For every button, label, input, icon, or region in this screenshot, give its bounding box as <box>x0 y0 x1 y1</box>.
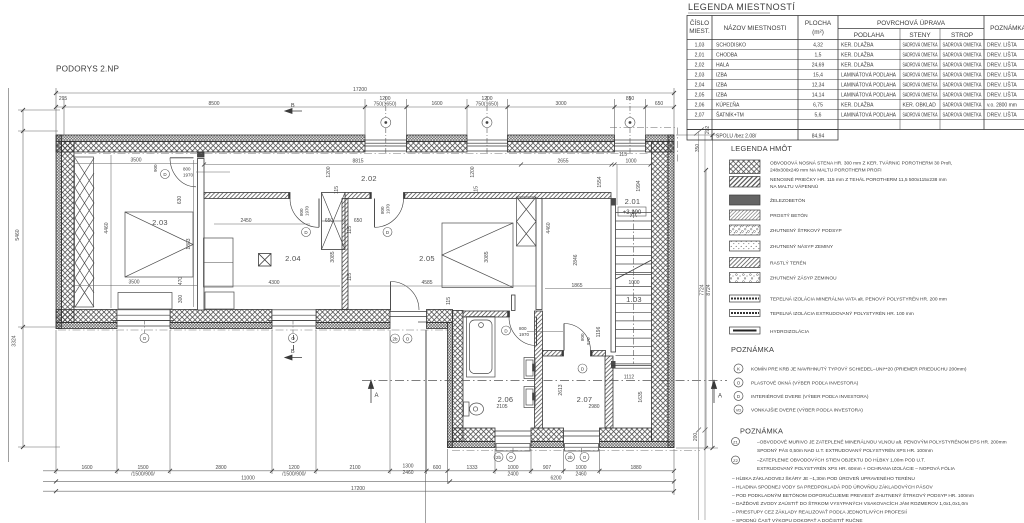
svg-text:6,75: 6,75 <box>813 103 823 109</box>
svg-text:350: 350 <box>695 144 701 153</box>
svg-text:4460: 4460 <box>104 222 110 233</box>
svg-text:KER. OBKLAD: KER. OBKLAD <box>903 103 937 109</box>
svg-text:1994: 1994 <box>636 180 642 191</box>
svg-text:PLOCHA: PLOCHA <box>805 20 832 27</box>
svg-text:ZHUTNENÝ ŠTRKOVÝ PODSYP: ZHUTNENÝ ŠTRKOVÝ PODSYP <box>770 227 842 234</box>
svg-text:115: 115 <box>446 297 452 305</box>
svg-text:2.03: 2.03 <box>152 218 168 227</box>
svg-text:1970: 1970 <box>519 332 530 337</box>
svg-text:1112: 1112 <box>624 375 635 381</box>
svg-text:8815: 8815 <box>352 159 363 165</box>
svg-text:1000: 1000 <box>507 465 518 471</box>
svg-text:1000: 1000 <box>625 159 636 165</box>
svg-text:VD: VD <box>736 408 742 413</box>
svg-text:IZBA: IZBA <box>716 93 728 99</box>
svg-text:LAMINÁTOVÁ PODLAHA: LAMINÁTOVÁ PODLAHA <box>841 72 897 79</box>
svg-text:O: O <box>737 381 741 386</box>
svg-text:8724: 8724 <box>706 284 712 295</box>
svg-text:ZHUTNENÝ ZÁSYP ZEMINOU: ZHUTNENÝ ZÁSYP ZEMINOU <box>770 275 837 282</box>
svg-text:A: A <box>718 394 722 400</box>
svg-text:5,6: 5,6 <box>815 113 822 119</box>
svg-text:1865: 1865 <box>571 283 582 289</box>
svg-text:2,02: 2,02 <box>695 63 705 69</box>
svg-text:KER. DLAŽBA: KER. DLAŽBA <box>841 51 874 59</box>
svg-text:3000: 3000 <box>555 101 566 107</box>
svg-text:SADROVÁ OMIETKA: SADROVÁ OMIETKA <box>943 72 983 79</box>
svg-text:/1500/900/: /1500/900/ <box>282 472 306 478</box>
svg-text:115: 115 <box>347 273 353 281</box>
svg-text:17200: 17200 <box>353 87 367 93</box>
svg-text:STENY: STENY <box>909 32 931 39</box>
svg-text:O: O <box>143 336 147 341</box>
svg-text:DREV. LIŠTA: DREV. LIŠTA <box>987 42 1017 49</box>
svg-text:POVRCHOVÁ ÚPRAVA: POVRCHOVÁ ÚPRAVA <box>877 18 946 27</box>
svg-text:800: 800 <box>519 326 527 331</box>
svg-text:650: 650 <box>655 101 664 107</box>
svg-text:1300: 1300 <box>402 464 413 470</box>
svg-text:DREV. LIŠTA: DREV. LIŠTA <box>987 92 1017 99</box>
svg-text:1970: 1970 <box>305 205 310 216</box>
svg-text:11000: 11000 <box>241 476 255 482</box>
svg-text:Z2: Z2 <box>733 458 738 463</box>
svg-text:2.01: 2.01 <box>625 197 641 206</box>
svg-text:/1500/900/: /1500/900/ <box>131 472 155 478</box>
svg-text:CHODBA: CHODBA <box>716 53 738 59</box>
svg-text:KOMÍN PRE KRB JE NAVRHNUTÝ TYP: KOMÍN PRE KRB JE NAVRHNUTÝ TYPOVÝ SCHIED… <box>751 366 967 373</box>
svg-text:1554: 1554 <box>597 176 603 187</box>
svg-text:4300: 4300 <box>268 280 279 286</box>
svg-text:3500: 3500 <box>128 280 139 286</box>
svg-text:HALA: HALA <box>716 63 730 69</box>
svg-text:– HĹBKA ZÁKLADOVEJ ŠKÁRY JE –1: – HĹBKA ZÁKLADOVEJ ŠKÁRY JE –1,30m POD Ú… <box>732 475 915 482</box>
svg-text:3324: 3324 <box>12 335 18 346</box>
svg-text:NÁZOV MIESTNOSTI: NÁZOV MIESTNOSTI <box>724 23 787 32</box>
svg-text:+3,190: +3,190 <box>623 210 642 216</box>
svg-text:1.03: 1.03 <box>626 295 642 304</box>
svg-text:–ZATEPLENIE OBVODOVÝCH STIEN O: –ZATEPLENIE OBVODOVÝCH STIEN OBJEKTU DO … <box>757 457 925 464</box>
svg-text:SADROVÁ OMIETKA: SADROVÁ OMIETKA <box>903 82 938 89</box>
svg-text:PODLAHA: PODLAHA <box>854 32 885 39</box>
svg-text:3085: 3085 <box>330 251 336 262</box>
svg-text:SADROVÁ OMIETKA: SADROVÁ OMIETKA <box>903 112 938 119</box>
svg-text:ŠATNÍK+TM: ŠATNÍK+TM <box>716 112 744 119</box>
svg-text:SADROVÁ OMIETKA: SADROVÁ OMIETKA <box>943 102 983 109</box>
svg-text:3085: 3085 <box>484 251 490 262</box>
svg-text:1200: 1200 <box>326 166 332 177</box>
svg-text:2.05: 2.05 <box>419 254 435 263</box>
svg-text:1500: 1500 <box>137 465 148 471</box>
svg-text:SADROVÁ OMIETKA: SADROVÁ OMIETKA <box>903 92 938 99</box>
svg-text:3500: 3500 <box>130 158 141 164</box>
svg-text:DREV. LIŠTA: DREV. LIŠTA <box>987 82 1017 89</box>
svg-text:1635: 1635 <box>638 391 644 402</box>
svg-text:RASTLÝ TERÉN: RASTLÝ TERÉN <box>770 260 807 267</box>
svg-text:DREV. LIŠTA: DREV. LIŠTA <box>987 52 1017 59</box>
svg-text:INTERIÉROVÉ DVERE (VÝBER PODĽA: INTERIÉROVÉ DVERE (VÝBER PODĽA INVESTORA… <box>751 393 869 400</box>
svg-text:115: 115 <box>474 186 480 194</box>
svg-text:MIEST.: MIEST. <box>689 28 710 35</box>
svg-text:1600: 1600 <box>81 465 92 471</box>
svg-text:TEPELNÁ IZOLÁCIA EXTRUDOVANÝ P: TEPELNÁ IZOLÁCIA EXTRUDOVANÝ POLYSTYRÉN … <box>770 310 914 317</box>
svg-text:OBVODOVÁ NOSNÁ STENA HR. 300 m: OBVODOVÁ NOSNÁ STENA HR. 300 mm Z KER. T… <box>770 160 952 167</box>
svg-text:24,69: 24,69 <box>812 63 825 69</box>
svg-text:ČÍSLO: ČÍSLO <box>690 18 709 27</box>
svg-text:DREV. LIŠTA: DREV. LIŠTA <box>987 72 1017 79</box>
svg-text:1200: 1200 <box>288 465 299 471</box>
svg-text:800: 800 <box>299 208 304 216</box>
svg-text:7724: 7724 <box>700 284 706 295</box>
svg-text:2655: 2655 <box>557 159 568 165</box>
svg-text:2,03: 2,03 <box>695 73 705 79</box>
svg-text:O: O <box>583 455 587 460</box>
svg-text:2980: 2980 <box>588 404 599 410</box>
svg-text:1000: 1000 <box>575 465 586 471</box>
svg-text:A: A <box>375 393 379 399</box>
svg-text:12,34: 12,34 <box>812 83 825 89</box>
svg-text:1196: 1196 <box>596 326 602 337</box>
svg-text:2.07: 2.07 <box>577 395 593 404</box>
svg-text:B: B <box>291 349 295 355</box>
svg-text:1970: 1970 <box>386 203 391 214</box>
svg-text:POZNÁMKA: POZNÁMKA <box>740 427 783 436</box>
svg-text:630: 630 <box>177 196 183 205</box>
svg-text:–OBVODOVÉ MURIVO JE ZATEPLENÉ: –OBVODOVÉ MURIVO JE ZATEPLENÉ MINERÁLNOU… <box>757 439 1007 446</box>
svg-text:115: 115 <box>347 226 353 234</box>
svg-text:KÚPEĽŇA: KÚPEĽŇA <box>716 102 740 109</box>
svg-text:ZHUTNENÝ NÁSYP ZEMINY: ZHUTNENÝ NÁSYP ZEMINY <box>770 243 834 250</box>
svg-text:2400: 2400 <box>507 472 518 478</box>
svg-text:970: 970 <box>586 337 591 345</box>
svg-text:200: 200 <box>693 433 699 442</box>
svg-text:(m²): (m²) <box>812 29 824 36</box>
svg-text:2460: 2460 <box>402 470 413 476</box>
svg-text:LAMINÁTOVÁ PODLAHA: LAMINÁTOVÁ PODLAHA <box>841 82 897 89</box>
svg-text:PROSTÝ BETÓN: PROSTÝ BETÓN <box>770 212 808 219</box>
svg-text:SPODNÝ PÁS 0,50m NAD U.T. EXTR: SPODNÝ PÁS 0,50m NAD U.T. EXTRUDOVANÝ PO… <box>757 447 933 454</box>
svg-text:1,5: 1,5 <box>815 53 822 59</box>
svg-text:1,03: 1,03 <box>695 43 705 49</box>
svg-text:B: B <box>291 103 295 109</box>
svg-text:1970: 1970 <box>183 173 194 178</box>
svg-text:NENOSNÉ PRIEČKY HR. 115 mm Z T: NENOSNÉ PRIEČKY HR. 115 mm Z TEHÁL POROT… <box>770 176 947 183</box>
svg-text:STROP: STROP <box>951 32 973 39</box>
svg-text:IZBA: IZBA <box>716 83 728 89</box>
svg-text:907: 907 <box>543 465 552 471</box>
svg-text:POZNÁMKA: POZNÁMKA <box>990 23 1024 32</box>
svg-text:5460: 5460 <box>15 229 21 240</box>
svg-text:2450: 2450 <box>240 218 251 224</box>
svg-text:DREV. LIŠTA: DREV. LIŠTA <box>987 62 1017 69</box>
svg-text:POZNÁMKA: POZNÁMKA <box>731 345 774 354</box>
svg-text:O: O <box>406 337 410 342</box>
svg-text:SADROVÁ OMIETKA: SADROVÁ OMIETKA <box>943 62 983 69</box>
svg-text:KER. DLAŽBA: KER. DLAŽBA <box>841 101 874 109</box>
svg-text:17200: 17200 <box>351 486 365 492</box>
svg-text:2b: 2b <box>567 455 573 460</box>
svg-text:6200: 6200 <box>550 476 561 482</box>
svg-text:900: 900 <box>153 164 158 172</box>
svg-text:2,07: 2,07 <box>695 113 705 119</box>
svg-text:2800: 2800 <box>215 465 226 471</box>
svg-text:1333: 1333 <box>466 465 477 471</box>
svg-text:SADROVÁ OMIETKA: SADROVÁ OMIETKA <box>943 112 983 119</box>
svg-text:O: O <box>509 455 513 460</box>
svg-text:248x300x249 mm NA MALTU POROTH: 248x300x249 mm NA MALTU POROTHERM PROFI <box>770 168 882 174</box>
svg-text:TEPELNÁ IZOLÁCIA MINERÁLNA VAT: TEPELNÁ IZOLÁCIA MINERÁLNA VATA alt. PEN… <box>770 296 947 303</box>
svg-text:SADROVÁ OMIETKA: SADROVÁ OMIETKA <box>903 42 938 49</box>
svg-text:PLASTOVÉ OKNÁ (VÝBER PODĽA INV: PLASTOVÉ OKNÁ (VÝBER PODĽA INVESTORA) <box>751 380 859 387</box>
svg-text:1803: 1803 <box>186 238 192 249</box>
svg-text:DREV. LIŠTA: DREV. LIŠTA <box>987 112 1017 119</box>
svg-text:SADROVÁ OMIETKA: SADROVÁ OMIETKA <box>943 82 983 89</box>
svg-text:2.02: 2.02 <box>361 174 377 183</box>
svg-text:4,32: 4,32 <box>813 43 823 49</box>
svg-text:84,94: 84,94 <box>812 134 825 140</box>
svg-text:1200: 1200 <box>470 166 476 177</box>
svg-text:4585: 4585 <box>421 280 432 286</box>
svg-text:NA MALTU VÁPENNÚ: NA MALTU VÁPENNÚ <box>770 183 819 190</box>
svg-text:2,01: 2,01 <box>695 53 705 59</box>
svg-text:2,05: 2,05 <box>695 93 705 99</box>
svg-text:KER. DLAŽBA: KER. DLAŽBA <box>841 61 874 69</box>
svg-text:SADROVÁ OMIETKA: SADROVÁ OMIETKA <box>943 42 983 49</box>
svg-text:LEGENDA MIESTNOSTÍ: LEGENDA MIESTNOSTÍ <box>688 2 795 12</box>
svg-text:2100: 2100 <box>349 465 360 471</box>
svg-text:HYDROIZOLÁCIA: HYDROIZOLÁCIA <box>770 328 810 335</box>
svg-text:2.04: 2.04 <box>285 254 301 263</box>
svg-text:650: 650 <box>354 218 363 224</box>
svg-text:PODORYS 2.NP: PODORYS 2.NP <box>56 65 119 74</box>
svg-text:2105: 2105 <box>496 404 507 410</box>
svg-text:115: 115 <box>334 186 340 194</box>
svg-text:1600: 1600 <box>431 101 442 107</box>
svg-text:2,06: 2,06 <box>695 103 705 109</box>
svg-text:750(1650): 750(1650) <box>374 102 397 108</box>
svg-text:470: 470 <box>178 277 184 286</box>
svg-text:14,14: 14,14 <box>812 93 825 99</box>
svg-text:SADROVÁ OMIETKA: SADROVÁ OMIETKA <box>903 52 938 59</box>
svg-text:VONKAJŠIE DVERE (VÝBER PODĽA I: VONKAJŠIE DVERE (VÝBER PODĽA INVESTORA) <box>751 407 863 414</box>
svg-text:IZBA: IZBA <box>716 73 728 79</box>
svg-text:2,04: 2,04 <box>695 83 705 89</box>
svg-text:SPOLU /bez 2.08/: SPOLU /bez 2.08/ <box>716 134 757 140</box>
svg-text:300: 300 <box>178 295 184 304</box>
svg-text:– HLADINA SPODNEJ VODY SA PRED: – HLADINA SPODNEJ VODY SA PREDPOKLADÁ PO… <box>732 483 933 490</box>
svg-text:v.o. 2800 mm: v.o. 2800 mm <box>987 103 1017 109</box>
svg-text:2b: 2b <box>496 455 502 460</box>
svg-text:600: 600 <box>433 465 442 471</box>
svg-text:800: 800 <box>580 333 585 341</box>
svg-text:1880: 1880 <box>630 465 641 471</box>
svg-text:SADROVÁ OMIETKA: SADROVÁ OMIETKA <box>903 62 938 69</box>
svg-text:2b: 2b <box>392 337 398 342</box>
svg-text:4460: 4460 <box>546 222 552 233</box>
svg-text:650: 650 <box>325 218 334 224</box>
svg-text:800: 800 <box>380 206 385 214</box>
svg-text:115: 115 <box>619 152 627 158</box>
svg-text:SADROVÁ OMIETKA: SADROVÁ OMIETKA <box>903 72 938 79</box>
svg-text:2613: 2613 <box>558 384 564 395</box>
svg-text:K: K <box>737 367 740 372</box>
svg-text:SADROVÁ OMIETKA: SADROVÁ OMIETKA <box>943 52 983 59</box>
svg-text:800: 800 <box>183 167 191 172</box>
svg-text:8500: 8500 <box>208 101 219 107</box>
svg-text:KER. DLAŽBA: KER. DLAŽBA <box>841 41 874 49</box>
svg-text:15,4: 15,4 <box>813 73 823 79</box>
svg-text:LEGENDA HMÔT: LEGENDA HMÔT <box>731 144 792 153</box>
svg-text:Z1: Z1 <box>733 440 738 445</box>
svg-text:LAMINÁTOVÁ PODLAHA: LAMINÁTOVÁ PODLAHA <box>841 92 897 99</box>
svg-text:EXTRUDOVANÝ POLYSTYRÉN XPS HR.: EXTRUDOVANÝ POLYSTYRÉN XPS HR. 60mm + OC… <box>757 465 956 472</box>
svg-text:SADROVÁ OMIETKA: SADROVÁ OMIETKA <box>943 92 983 99</box>
svg-text:SCHODISKO: SCHODISKO <box>716 43 746 49</box>
svg-text:1000: 1000 <box>628 280 639 286</box>
svg-text:2460: 2460 <box>575 472 586 478</box>
svg-text:2846: 2846 <box>573 254 579 265</box>
svg-text:295: 295 <box>59 96 68 102</box>
svg-text:2.06: 2.06 <box>498 395 514 404</box>
svg-text:LAMINÁTOVÁ PODLAHA: LAMINÁTOVÁ PODLAHA <box>841 112 897 119</box>
